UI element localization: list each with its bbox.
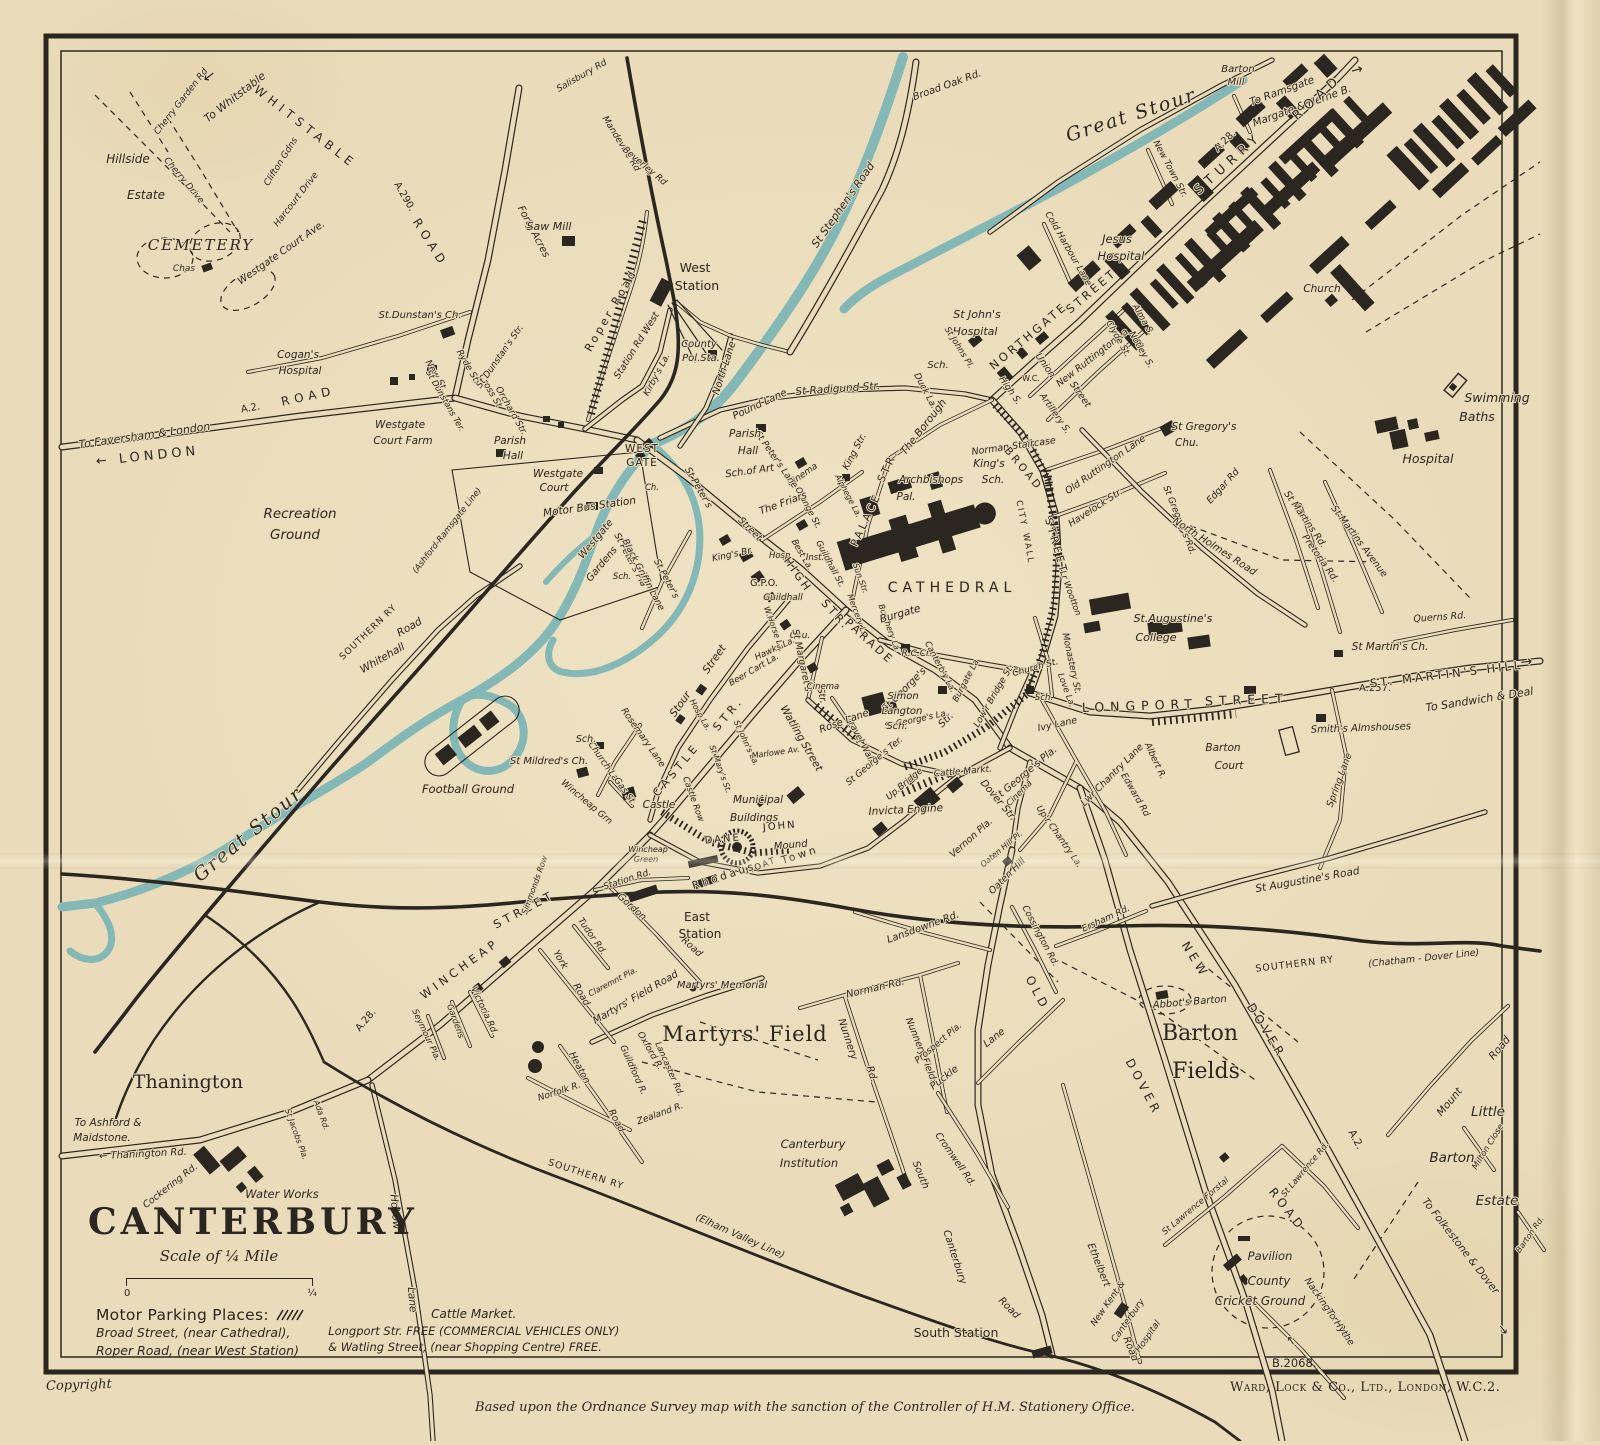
map-label: Pol.Sta. [682,353,720,364]
map-label: King's Br. [711,546,754,564]
map-sheet: ←To WhitstableCherry Garden RdCherry Dri… [0,0,1600,1441]
map-label: Pal. [896,491,915,503]
map-label: To Folkestone & Dover [1419,1196,1502,1297]
map-label: Salisbury Rd [555,58,609,95]
map-label: Lr Wootton [1057,570,1082,618]
map-label: WINCHEAP [417,935,501,1002]
map-label: Harcourt Drive [272,170,321,229]
map-label: Sch. [576,734,596,745]
map-label: Little [1471,1104,1505,1120]
map-label: Guildford R. [617,1044,648,1097]
map-label: Estate [127,188,165,202]
legend-item: Cattle Market. [328,1306,619,1323]
map-label: Zealand R. [635,1101,685,1127]
map-label: WHITSTABLE [251,82,359,171]
map-label: St Stephen's Road [809,159,878,250]
map-label: St Martins Avenue [1328,503,1389,579]
map-label: ← LONDON [95,444,200,470]
map-label: Watling [778,703,808,744]
map-label: (Ashford-Ramsgate Line) [411,486,484,576]
map-label: Victoria Rd. [468,985,499,1036]
map-label: Langton [882,706,923,717]
map-label: Barton [1429,1150,1474,1166]
map-label: STREET [1042,517,1070,576]
map-label: Chas [173,264,196,274]
map-label: Barton [1205,742,1240,754]
map-label: Cattle Markt. [933,764,992,779]
map-label: Cherry Garden Rd [153,67,211,137]
scale-tick-quarter: ¼ [307,1288,317,1299]
map-label: St Martin's Ch. [1352,641,1429,653]
map-label: West [680,260,711,275]
map-label: Beer Cart La. [727,652,780,689]
parking-legend: Motor Parking Places: Broad Street, (nea… [96,1306,619,1360]
map-label: Clifton Gdns [262,136,300,188]
map-label: Simon [887,691,918,702]
ordnance-survey-note: Based upon the Ordnance Survey map with … [400,1400,1210,1415]
map-label: Smith's Almshouses [1311,721,1412,735]
hospital-buildings [1375,409,1440,453]
legend-item: Longport Str. FREE (COMMERCIAL VEHICLES … [328,1323,619,1339]
map-label: Baths [1459,409,1495,424]
legend-column-2: Cattle Market. Longport Str. FREE (COMME… [328,1306,619,1360]
map-label: Lane [982,1026,1008,1050]
map-label: South Station [914,1325,999,1340]
map-label: Spring Lane [1325,752,1355,809]
map-label: King Str. [841,432,869,472]
map-label: Tudor Rd. [575,916,608,957]
map-label: A.2. [240,401,261,415]
map-label: Chu. [1175,437,1199,449]
copyright-note: Copyright [46,1377,112,1394]
map-label: Mill [1228,77,1245,88]
map-label: St John's [953,308,1001,321]
map-label: College [1135,631,1176,644]
publisher-imprint: Ward, Lock & Co., Ltd., London, W.C.2. [1230,1380,1570,1395]
west-station-building [650,278,674,307]
map-label: Jesus [1100,232,1132,246]
map-label: Church [1303,283,1340,295]
legend-item: Broad Street, (near Cathedral), [96,1324,304,1342]
map-label: Road [1486,1034,1513,1063]
scale-bar: 0 ¼ [126,1278,313,1286]
map-label: Ch. [645,483,659,493]
map-label: ROAD [410,216,451,270]
map-label: Hospital [279,365,322,377]
map-label: Street [798,740,825,775]
map-label: Station [679,927,722,941]
map-label: Albert R. [1142,740,1168,781]
map-label: Parish [729,428,761,440]
map-label: → [1349,61,1365,80]
map-label: Hall [503,450,523,462]
map-label: County [681,339,718,350]
map-label: Heaton [566,1050,592,1086]
map-label: St Gregory's [1171,421,1237,433]
map-label: CITY [1013,499,1028,527]
map-label: St.Augustine's [1134,612,1213,625]
legend-column-1: Motor Parking Places: Broad Street, (nea… [96,1306,304,1360]
map-label: A.28. [354,1007,379,1034]
map-label: Rosemary Lane [618,706,667,769]
map-label: WEST [625,443,659,455]
map-label: Sch. [982,474,1004,486]
map-label: Court [540,482,570,494]
map-label: Sch. [613,572,631,582]
map-label: W.C. [1022,374,1040,383]
map-label: Hospital [953,325,998,338]
map-label: WALL [1020,532,1035,564]
map-label: Sch. [927,360,948,371]
map-label: Swimming [1464,390,1529,405]
map-label: SOUTHERN RY [1255,954,1335,975]
map-label: Great Stour [189,782,307,886]
map-label: St Dunstan's Str. [475,323,526,390]
map-label: Court Farm [373,435,432,447]
map-label: Hospital [1134,1319,1164,1355]
map-label: Ground [270,527,320,543]
map-label: STREET [1205,691,1289,709]
map-label: Hall [738,445,758,457]
map-label: Querns Rd. [1413,610,1467,625]
map-label: Saw Mill [527,220,572,233]
map-label: Westgate [533,468,583,480]
map-label: Thanington [133,1071,243,1093]
map-label: Archbishops [898,474,964,486]
map-label: Norman Rd. [845,977,906,1001]
map-label: To Ashford & [75,1117,142,1129]
map-label: St Augustine's Road [1255,865,1361,895]
legend-item: & Watling Street, (near Shopping Centre)… [328,1339,619,1355]
map-label: To Hythe [1324,1307,1357,1348]
map-label: Cricket Ground [1215,1294,1306,1308]
map-label: DOVER [1123,1056,1165,1118]
map-label: Martyrs' Field [662,1022,828,1046]
paper-crease [0,853,1600,869]
map-title: CANTERBURY [88,1201,350,1243]
map-label: Cogan's [277,349,319,361]
legend-item: Roper Road, (near West Station) [96,1342,304,1360]
map-label: GATE [626,457,658,469]
map-label: JOHN [761,820,797,834]
map-label: Castle [643,799,676,811]
map-label: East [684,910,710,924]
map-label: Canterbury [940,1229,968,1287]
map-label: Motor Bus Station [542,495,636,520]
map-label: Road [996,1295,1022,1321]
map-label: Barton [1162,1021,1238,1046]
map-label: Ada Rd. [311,1098,330,1131]
map-label: Marlowe Av. [751,745,800,761]
map-label: Football Ground [422,782,515,796]
map-label: Martyrs' Field Road [591,969,681,1027]
map-label: Road [395,615,425,639]
map-label: Wincheap Grn [559,778,614,827]
map-label: A.2. [1346,1128,1366,1152]
scale-label: Scale of ¼ Mile [88,1247,350,1265]
scale-tick-zero: 0 [124,1288,130,1299]
map-label: Rd. [864,1065,880,1084]
map-label: ST. MARTIN'S HILL [1369,658,1524,691]
map-label: Barton [1221,64,1254,75]
map-label: St Jacobs Pla. [283,1107,310,1160]
map-label: Broad Oak Rd. [911,68,983,103]
map-label: A.290. [391,180,417,213]
map-label: G.P.O. [750,578,778,589]
map-label: Estate [1476,1193,1519,1209]
map-label: Institution [780,1156,838,1170]
plate-number: B.2068. [1272,1356,1316,1370]
map-label: Maidstone. [73,1132,131,1144]
map-label: South [910,1160,931,1191]
map-label: Artillery S. [1037,391,1073,436]
map-label: The Borough [898,397,949,457]
map-label: Station [675,278,719,293]
map-label: Canterbury [781,1137,846,1151]
map-label: Hospital [1098,249,1146,263]
map-label: Westgate [375,419,425,431]
map-label: Sch. [1035,693,1053,703]
map-label: County [1248,1274,1292,1288]
map-label: Hillside [106,152,150,166]
map-label: Invicta Engine [868,802,943,818]
map-label: Cinema [807,682,839,692]
map-label: Street [700,642,729,676]
map-label: Pavilion [1248,1249,1293,1263]
map-label: Inst. [806,553,824,563]
map-label: Hospital [1402,451,1454,466]
map-label: Edward Rd [1118,771,1151,818]
map-label: Mount [1435,1085,1466,1119]
map-label: St.Dunstan's Ch. [378,310,461,321]
map-label: Cromwell Rd. [932,1131,977,1189]
map-label: Sch.of Art [725,463,776,481]
map-label: CATHEDRAL [888,580,1017,596]
map-label: (Chatham - Dover Line) [1368,947,1480,970]
map-label: Sch. [886,721,907,732]
map-label: Municipal [733,794,783,806]
map-label: Martyrs' Memorial [677,980,768,991]
map-frame [46,36,1516,1372]
map-label: Parish [494,435,526,447]
map-label: Edgar Rd [1205,466,1243,506]
map-label: ROAD [280,384,337,409]
map-label: Guildhall [763,593,803,603]
map-label: North Holmes Road [1171,516,1259,579]
map-label: STR. [875,447,901,484]
map-label: → [1493,1321,1512,1339]
map-label: Nunnery [836,1017,860,1062]
map-label: CEMETERY [148,236,255,254]
map-label: → [1520,653,1534,670]
parking-hatch-icon [274,1308,304,1322]
legend-heading: Motor Parking Places: [96,1306,304,1324]
map-label: DOVER [1244,1001,1289,1062]
map-label: Court [1215,760,1245,772]
map-label: Cherry Drive [161,156,206,207]
map-label: Water Works [245,1187,319,1201]
map-label: St Mildred's Ch. [510,756,588,767]
map-label: King's [973,458,1005,470]
map-label: Recreation [263,506,336,522]
map-label: Fields [1172,1059,1240,1084]
paper-fold [1540,0,1600,1441]
map-label: Roper Road [582,267,640,354]
map-label: St Radigund Str. [795,380,881,398]
